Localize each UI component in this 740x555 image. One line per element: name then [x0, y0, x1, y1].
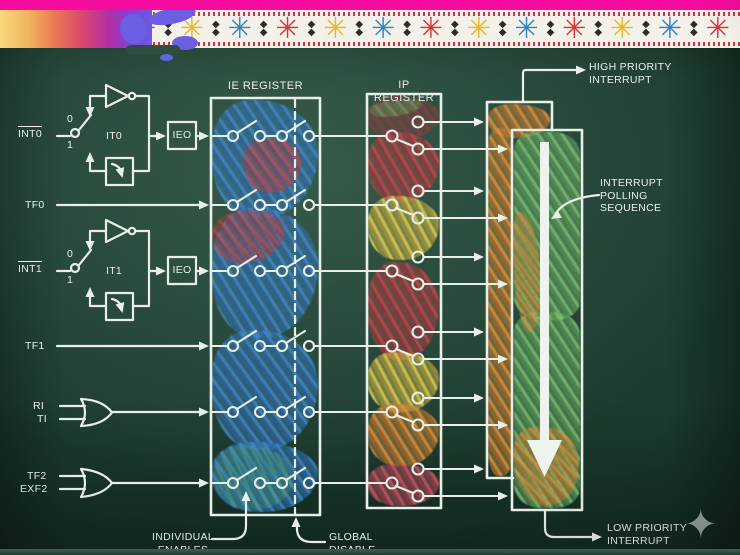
label-int0: INT0 — [18, 128, 42, 141]
label-tf2: TF2 — [27, 470, 47, 483]
label-ieo0: IEO — [168, 129, 196, 142]
ie-register-header: IE REGISTER — [211, 80, 320, 93]
switch-contact — [255, 478, 265, 488]
switch-contact — [413, 213, 424, 224]
label-ti: TI — [37, 413, 47, 426]
switch-pivot — [71, 264, 79, 272]
arrowhead — [292, 517, 301, 527]
arrowhead — [592, 533, 602, 542]
switch-contact — [228, 266, 238, 276]
arrowhead — [86, 287, 95, 297]
arrowhead — [498, 355, 508, 364]
switch-contact — [228, 200, 238, 210]
label-low-priority: LOW PRIORITY INTERRUPT — [607, 522, 687, 547]
label-int1: INT1 — [18, 263, 42, 276]
arrowhead — [116, 302, 127, 314]
switch-contact — [277, 407, 287, 417]
inverter-triangles — [106, 85, 128, 242]
switch-contact — [277, 131, 287, 141]
ip-register-header: IP REGISTER — [367, 79, 441, 104]
arrowhead — [576, 66, 586, 75]
arrowhead — [199, 408, 209, 417]
arrowhead — [474, 465, 484, 474]
label-polling-sequence: INTERRUPT POLLING SEQUENCE — [600, 177, 663, 215]
switch-contact — [413, 393, 424, 404]
switch-contact — [228, 478, 238, 488]
arrowhead — [86, 241, 95, 251]
label-it1: IT1 — [106, 265, 122, 278]
arrowhead — [474, 328, 484, 337]
label-tf0: TF0 — [25, 199, 45, 212]
label-it1-pos0: 0 — [67, 248, 73, 261]
or-gates — [81, 399, 112, 497]
switch-contact — [255, 131, 265, 141]
arrowhead — [474, 253, 484, 262]
switch-contact — [413, 354, 424, 365]
switch-contact — [304, 131, 314, 141]
switch-contact — [387, 266, 398, 277]
switch-contact — [413, 491, 424, 502]
label-ieo1: IEO — [168, 264, 196, 277]
chalkboard-slide: ✳◆ ◆✳◆ ◆✳◆ ◆✳◆ ◆✳◆ ◆✳◆ ◆✳◆ ◆✳◆ ◆✳◆ ◆✳◆ ◆… — [0, 0, 740, 555]
switch-contact — [387, 407, 398, 418]
int0-text: INT0 — [18, 126, 42, 140]
arrowhead — [474, 394, 484, 403]
arrowhead — [156, 267, 166, 276]
switch-contact — [277, 200, 287, 210]
switch-contact — [413, 252, 424, 263]
switch-contact — [304, 341, 314, 351]
arrowhead — [156, 132, 166, 141]
switch-contact — [413, 117, 424, 128]
sparkle-icon: ✦ — [684, 502, 718, 548]
label-it0-pos0: 0 — [67, 113, 73, 126]
label-it0: IT0 — [106, 130, 122, 143]
arrowhead — [549, 210, 562, 223]
label-ri: RI — [33, 400, 44, 413]
switch-contact — [255, 200, 265, 210]
switch-contact — [413, 279, 424, 290]
arrowhead — [474, 118, 484, 127]
arrowhead — [242, 491, 251, 501]
label-tf1: TF1 — [25, 340, 45, 353]
label-exf2: EXF2 — [20, 483, 47, 496]
polling-sequence-arrow — [527, 142, 562, 477]
switch-contact — [304, 407, 314, 417]
switch-contact — [413, 144, 424, 155]
switch-contact — [255, 407, 265, 417]
arrowhead — [474, 187, 484, 196]
switch-contact — [277, 478, 287, 488]
switch-contact — [413, 420, 424, 431]
board-bottom-edge — [0, 549, 740, 555]
switch-contact — [413, 327, 424, 338]
switch-contact — [304, 478, 314, 488]
switch-contact — [387, 478, 398, 489]
arrowhead — [116, 167, 127, 179]
switch-contact — [387, 341, 398, 352]
switch-contact — [277, 341, 287, 351]
arrowhead — [199, 342, 209, 351]
switch-contact — [304, 266, 314, 276]
input-leads — [57, 205, 201, 489]
switch-contact — [228, 131, 238, 141]
arrowhead — [199, 201, 209, 210]
switch-contact — [228, 407, 238, 417]
ie-register-box — [211, 98, 320, 515]
arrowhead — [498, 214, 508, 223]
label-it0-pos1: 1 — [67, 139, 73, 152]
arrowhead — [498, 492, 508, 501]
switch-contact — [387, 131, 398, 142]
arrowhead — [86, 107, 95, 117]
arrowhead — [199, 267, 209, 276]
arrowhead — [498, 280, 508, 289]
label-it1-pos1: 1 — [67, 274, 73, 287]
switch-contact — [255, 341, 265, 351]
switch-contact — [413, 464, 424, 475]
switch-contact — [387, 200, 398, 211]
switch-contact — [277, 266, 287, 276]
arrowhead — [199, 479, 209, 488]
arrowhead — [498, 421, 508, 430]
switch-contact — [304, 200, 314, 210]
ip-register-box — [367, 94, 441, 508]
int1-text: INT1 — [18, 261, 42, 275]
switch-contact — [255, 266, 265, 276]
switch-contact — [228, 341, 238, 351]
inverter-bubble — [129, 93, 135, 99]
label-high-priority: HIGH PRIORITY INTERRUPT — [589, 61, 672, 86]
arrowhead — [86, 152, 95, 162]
switch-contact — [413, 186, 424, 197]
switch-pivot — [71, 129, 79, 137]
inverter-bubble — [129, 228, 135, 234]
arrowhead — [498, 145, 508, 154]
arrowhead — [199, 132, 209, 141]
